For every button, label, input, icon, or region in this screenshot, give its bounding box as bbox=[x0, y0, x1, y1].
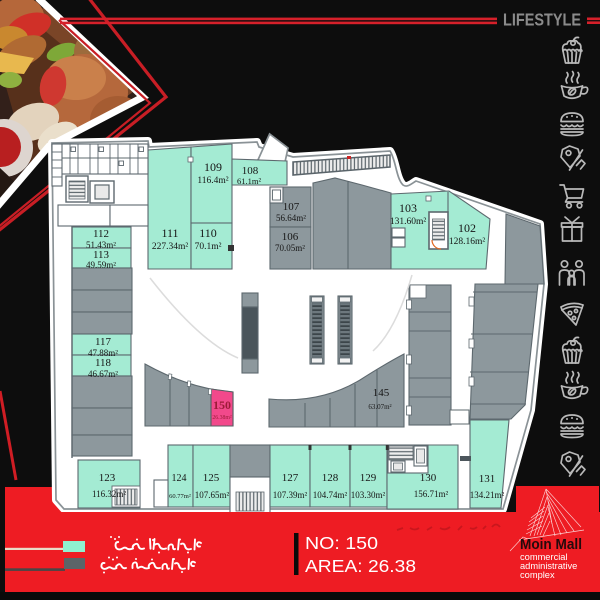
svg-text:102: 102 bbox=[458, 221, 476, 235]
svg-text:128: 128 bbox=[322, 472, 339, 484]
svg-text:128.16m²: 128.16m² bbox=[449, 237, 486, 247]
svg-text:103: 103 bbox=[399, 201, 417, 215]
svg-text:145: 145 bbox=[373, 387, 390, 399]
svg-text:116.32m²: 116.32m² bbox=[92, 489, 126, 499]
svg-text:134.21m²: 134.21m² bbox=[470, 490, 505, 500]
svg-text:LIFESTYLE: LIFESTYLE bbox=[503, 10, 581, 30]
svg-text:61.1m²: 61.1m² bbox=[237, 176, 261, 186]
svg-text:Moin Mall: Moin Mall bbox=[520, 536, 582, 553]
svg-text:70.1m²: 70.1m² bbox=[195, 242, 222, 252]
svg-text:70.05m²: 70.05m² bbox=[275, 243, 305, 253]
svg-text:124: 124 bbox=[172, 473, 187, 484]
svg-text:130: 130 bbox=[420, 472, 437, 484]
svg-text:46.67m²: 46.67m² bbox=[88, 369, 118, 379]
svg-text:49.59m²: 49.59m² bbox=[86, 260, 116, 270]
svg-text:109: 109 bbox=[204, 160, 222, 174]
svg-text:123: 123 bbox=[99, 472, 116, 484]
svg-text:227.34m²: 227.34m² bbox=[152, 242, 189, 252]
svg-text:complex: complex bbox=[520, 570, 555, 580]
svg-text:107: 107 bbox=[283, 201, 300, 213]
svg-text:26.38m²: 26.38m² bbox=[212, 415, 232, 421]
svg-text:131.60m²: 131.60m² bbox=[390, 217, 427, 227]
svg-text:104.74m²: 104.74m² bbox=[313, 490, 348, 500]
svg-text:111: 111 bbox=[161, 226, 178, 240]
svg-text:56.64m²: 56.64m² bbox=[276, 213, 306, 223]
svg-text:63.07m²: 63.07m² bbox=[368, 403, 391, 411]
svg-text:NO: 150: NO: 150 bbox=[305, 533, 378, 553]
svg-text:107.65m²: 107.65m² bbox=[195, 490, 230, 500]
svg-text:131: 131 bbox=[479, 473, 496, 485]
svg-text:129: 129 bbox=[360, 472, 377, 484]
svg-text:AREA: 26.38: AREA: 26.38 bbox=[305, 556, 416, 576]
svg-text:107.39m²: 107.39m² bbox=[273, 490, 308, 500]
svg-text:150: 150 bbox=[213, 398, 231, 412]
svg-text:117: 117 bbox=[95, 336, 112, 348]
svg-text:103.30m²: 103.30m² bbox=[351, 490, 386, 500]
svg-text:156.71m²: 156.71m² bbox=[414, 489, 449, 499]
svg-text:127: 127 bbox=[282, 472, 299, 484]
svg-text:118: 118 bbox=[95, 357, 112, 369]
svg-text:112: 112 bbox=[93, 228, 109, 240]
svg-text:60.77m²: 60.77m² bbox=[169, 493, 191, 500]
svg-text:125: 125 bbox=[203, 472, 220, 484]
svg-text:110: 110 bbox=[199, 226, 217, 240]
svg-text:106: 106 bbox=[282, 231, 299, 243]
svg-text:116.4m²: 116.4m² bbox=[197, 176, 228, 186]
